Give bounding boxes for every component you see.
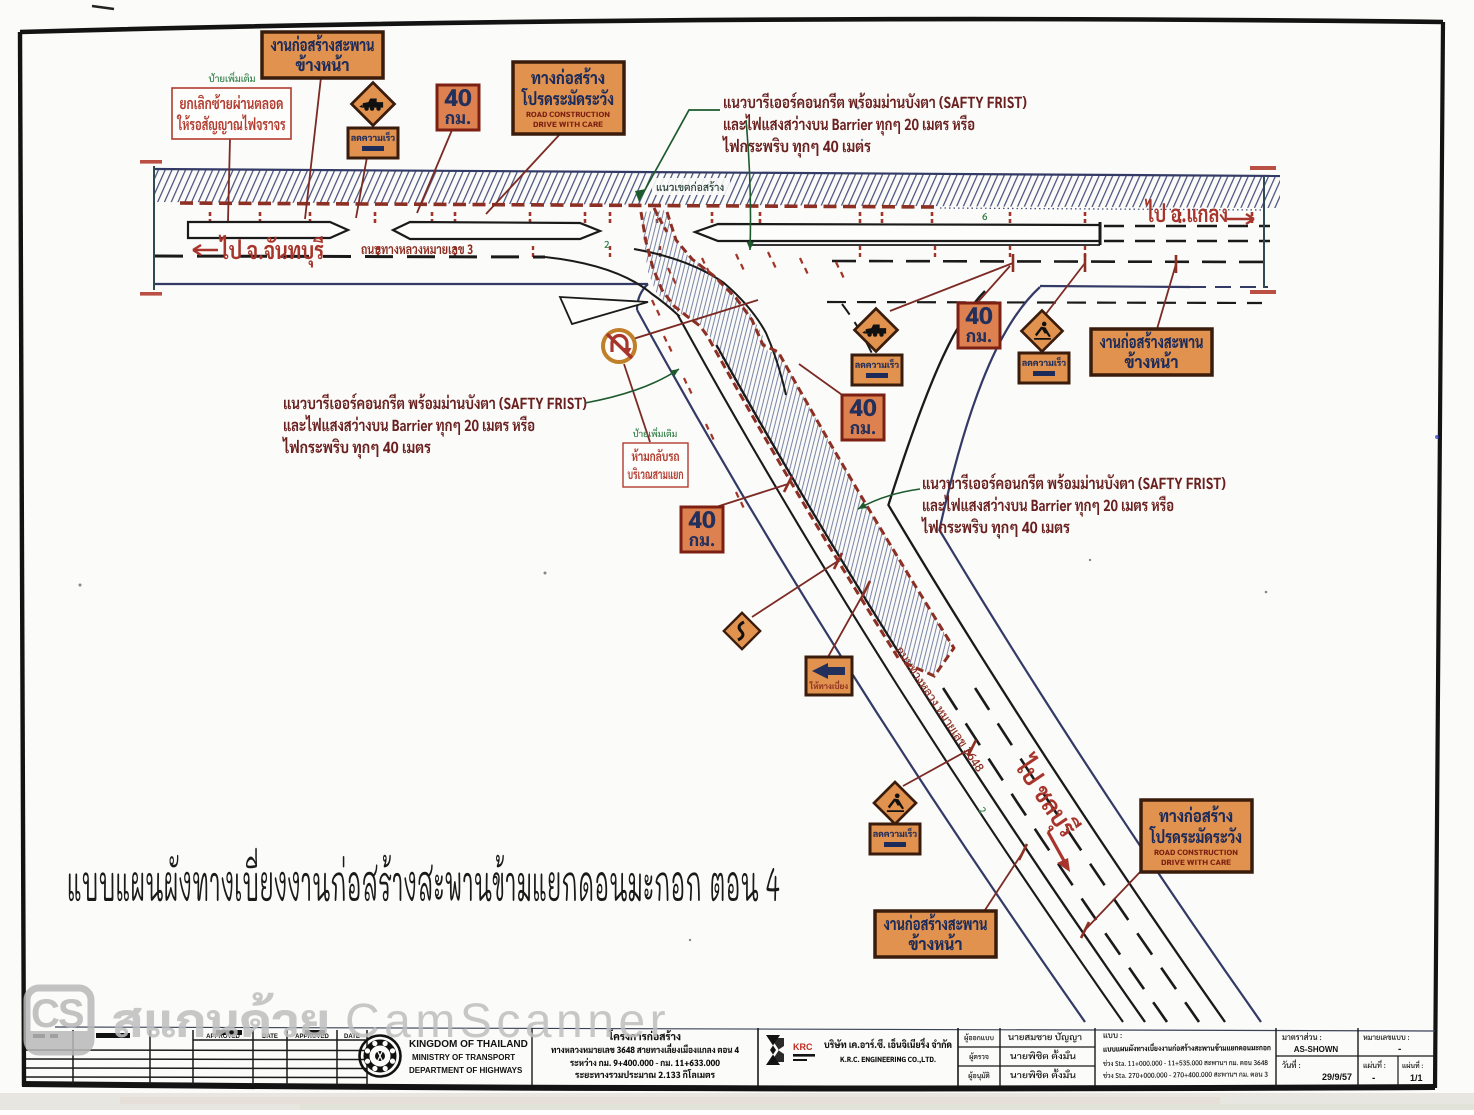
svg-text:1/1: 1/1 [1410, 1073, 1423, 1083]
svg-text:CS: CS [31, 992, 84, 1036]
svg-text:MINISTRY OF TRANSPORT: MINISTRY OF TRANSPORT [412, 1053, 515, 1062]
svg-text:AS-SHOWN: AS-SHOWN [1294, 1045, 1339, 1054]
svg-text:DEPARTMENT OF HIGHWAYS: DEPARTMENT OF HIGHWAYS [409, 1066, 523, 1075]
svg-text:CamScanner: CamScanner [345, 995, 670, 1048]
svg-text:29/9/57: 29/9/57 [1322, 1072, 1352, 1082]
svg-text:KRC: KRC [793, 1042, 813, 1052]
svg-text:-: - [1372, 1073, 1375, 1084]
svg-text:-: - [1398, 1044, 1401, 1055]
